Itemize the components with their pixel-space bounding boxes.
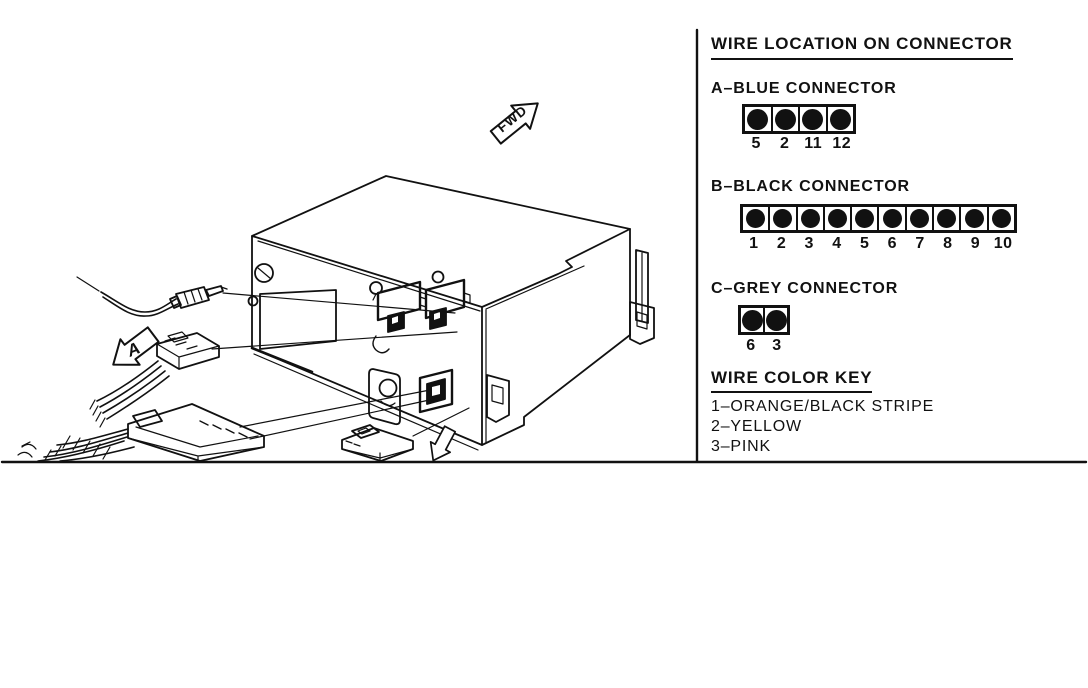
- pin-dot: [801, 209, 820, 228]
- pin-cell: [798, 107, 826, 131]
- pin-number: 9: [962, 235, 990, 253]
- pin-number: 2: [771, 135, 800, 153]
- pin-number: 12: [828, 135, 857, 153]
- pin-dot: [965, 209, 984, 228]
- pin-number: 10: [989, 235, 1017, 253]
- detail-a-flag: A: [104, 322, 163, 378]
- pin-number: 11: [799, 135, 828, 153]
- pin-cell: [796, 207, 823, 230]
- pin-cell: [877, 207, 904, 230]
- pin-dot: [828, 209, 847, 228]
- main-harness-connector-drawing: [18, 404, 264, 461]
- pin-dot: [992, 209, 1011, 228]
- fwd-arrow-icon: FWD: [486, 92, 547, 149]
- pin-dot: [742, 310, 763, 331]
- wire-color-key-item: 2–YELLOW: [711, 418, 802, 436]
- pin-number: 7: [906, 235, 934, 253]
- pin-cell: [763, 308, 787, 332]
- pin-cell: [850, 207, 877, 230]
- pin-number: 5: [851, 235, 879, 253]
- pin-dot: [746, 209, 765, 228]
- wire-color-key-title: WIRE COLOR KEY: [711, 368, 872, 393]
- wire-color-key-item: 1–ORANGE/BLACK STRIPE: [711, 398, 934, 416]
- pin-cell: [959, 207, 986, 230]
- connector-a-label: A–BLUE CONNECTOR: [711, 80, 897, 98]
- pin-number: 4: [823, 235, 851, 253]
- pin-cell: [905, 207, 932, 230]
- pin-number: 6: [879, 235, 907, 253]
- pin-number: 3: [764, 337, 790, 355]
- connector-b-pin-diagram: [740, 204, 1017, 233]
- connector-a-pin-numbers: 5 2 11 12: [742, 135, 856, 153]
- pin-cell: [745, 107, 771, 131]
- insert-direction-arrow-icon: [423, 424, 459, 466]
- pin-cell: [743, 207, 768, 230]
- antenna-plug-drawing: [77, 277, 227, 316]
- wire-color-key-item: 3–PINK: [711, 438, 771, 456]
- pin-dot: [855, 209, 874, 228]
- pin-cell: [932, 207, 959, 230]
- pin-number: 8: [934, 235, 962, 253]
- pin-dot: [775, 109, 796, 130]
- connector-b-pin-numbers: 1 2 3 4 5 6 7 8 9 10: [740, 235, 1017, 253]
- figure-canvas: A: [0, 0, 1088, 688]
- pin-cell: [987, 207, 1014, 230]
- connector-a-drawing: [90, 332, 219, 427]
- pin-dot: [883, 209, 902, 228]
- pin-dot: [910, 209, 929, 228]
- pin-number: 1: [740, 235, 768, 253]
- connector-c-label: C–GREY CONNECTOR: [711, 280, 898, 298]
- pin-cell: [826, 107, 854, 131]
- connector-c-pin-numbers: 6 3: [738, 337, 790, 355]
- pin-dot: [830, 109, 851, 130]
- pin-number: 3: [795, 235, 823, 253]
- pin-number: 2: [768, 235, 796, 253]
- connector-a-pin-diagram: [742, 104, 856, 134]
- pin-cell: [771, 107, 799, 131]
- connector-b-label: B–BLACK CONNECTOR: [711, 178, 910, 196]
- pin-dot: [937, 209, 956, 228]
- pin-cell: [741, 308, 763, 332]
- pin-cell: [823, 207, 850, 230]
- manual-page: { "panel": { "title": "WIRE LOCATION ON …: [0, 0, 1088, 688]
- pin-cell: [768, 207, 795, 230]
- pin-number: 5: [742, 135, 771, 153]
- pin-number: 6: [738, 337, 764, 355]
- power-connector-drawing: [342, 425, 413, 461]
- pin-dot: [802, 109, 823, 130]
- pin-dot: [747, 109, 768, 130]
- connector-c-pin-diagram: [738, 305, 790, 335]
- pin-dot: [773, 209, 792, 228]
- pin-dot: [766, 310, 787, 331]
- panel-title: WIRE LOCATION ON CONNECTOR: [711, 34, 1013, 60]
